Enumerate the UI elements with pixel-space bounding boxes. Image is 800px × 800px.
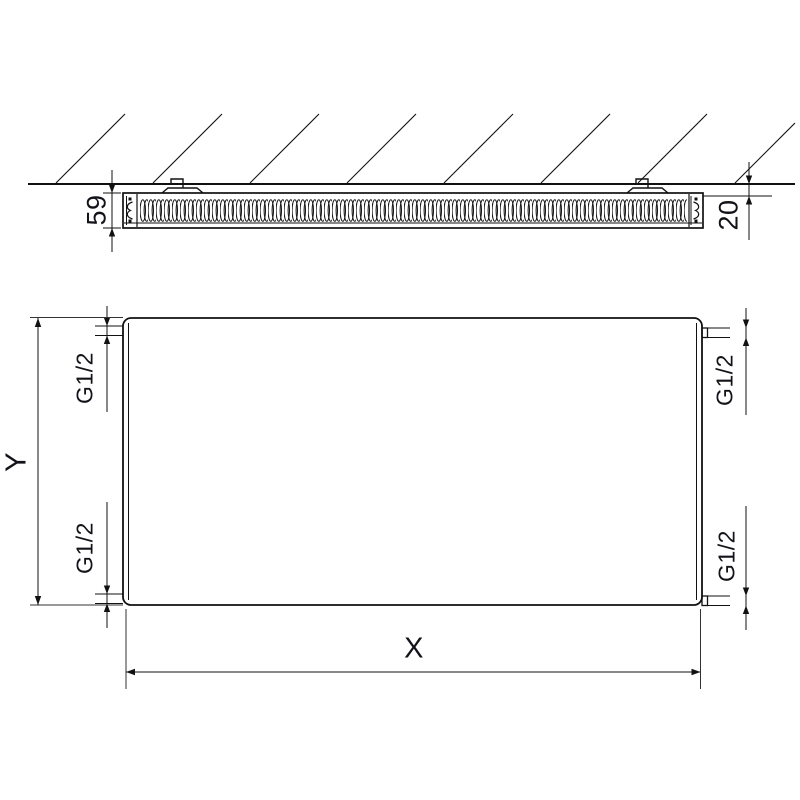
dimension-conn-bottom-left [104, 502, 110, 628]
dim-label-depth: 59 [84, 194, 111, 225]
wall-section-hatch [28, 114, 795, 184]
radiator-cross-section [123, 193, 703, 228]
dim-label-wall-gap: 20 [716, 199, 743, 230]
dimension-conn-top-left [104, 306, 110, 412]
mounting-brackets [162, 179, 668, 193]
radiator-front-view [123, 318, 702, 605]
dim-label-width: X [404, 635, 424, 664]
dim-label-height: Y [3, 452, 32, 472]
dim-label-conn-top-left: G1/2 [74, 352, 97, 404]
dimension-conn-bottom-right [743, 506, 749, 630]
dim-label-conn-bottom-right: G1/2 [716, 530, 739, 582]
convector-fins [140, 199, 687, 222]
dim-label-conn-bottom-left: G1/2 [74, 522, 97, 574]
radiator-technical-drawing: 59 20 G1/2 G1/2 G1/2 G1/2 Y X [0, 0, 800, 800]
dim-label-conn-top-right: G1/2 [714, 354, 737, 406]
drawing-linework [0, 0, 800, 800]
dimension-conn-top-right [743, 308, 749, 415]
